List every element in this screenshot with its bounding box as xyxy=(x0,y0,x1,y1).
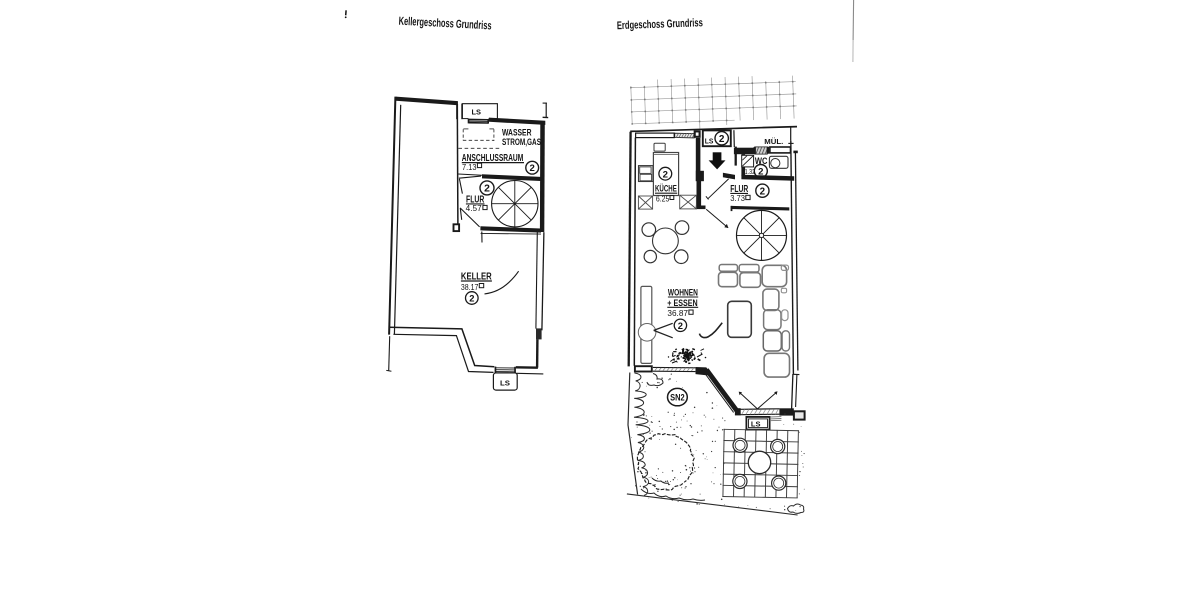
svg-text:4.57: 4.57 xyxy=(466,204,483,213)
svg-text:6.25: 6.25 xyxy=(656,194,670,203)
svg-text:2: 2 xyxy=(469,293,474,304)
svg-text:2: 2 xyxy=(719,134,725,145)
svg-text:2: 2 xyxy=(760,186,766,197)
svg-text:38.17: 38.17 xyxy=(461,282,479,292)
svg-text:MÜL.: MÜL. xyxy=(764,137,783,146)
svg-text:2: 2 xyxy=(678,320,683,331)
svg-text:LS: LS xyxy=(500,379,510,388)
svg-text:LS: LS xyxy=(751,420,761,429)
svg-text:3.73: 3.73 xyxy=(730,194,745,203)
svg-text:36.87: 36.87 xyxy=(667,309,688,318)
svg-text:LS: LS xyxy=(705,139,714,146)
svg-text:STROM,GAS: STROM,GAS xyxy=(502,137,541,148)
svg-text:LS: LS xyxy=(472,107,482,116)
svg-text:7.13: 7.13 xyxy=(462,163,477,172)
svg-text:SN2: SN2 xyxy=(670,393,685,403)
svg-text:2: 2 xyxy=(663,169,668,180)
svg-text:2: 2 xyxy=(530,163,535,174)
svg-text:2: 2 xyxy=(484,184,490,195)
